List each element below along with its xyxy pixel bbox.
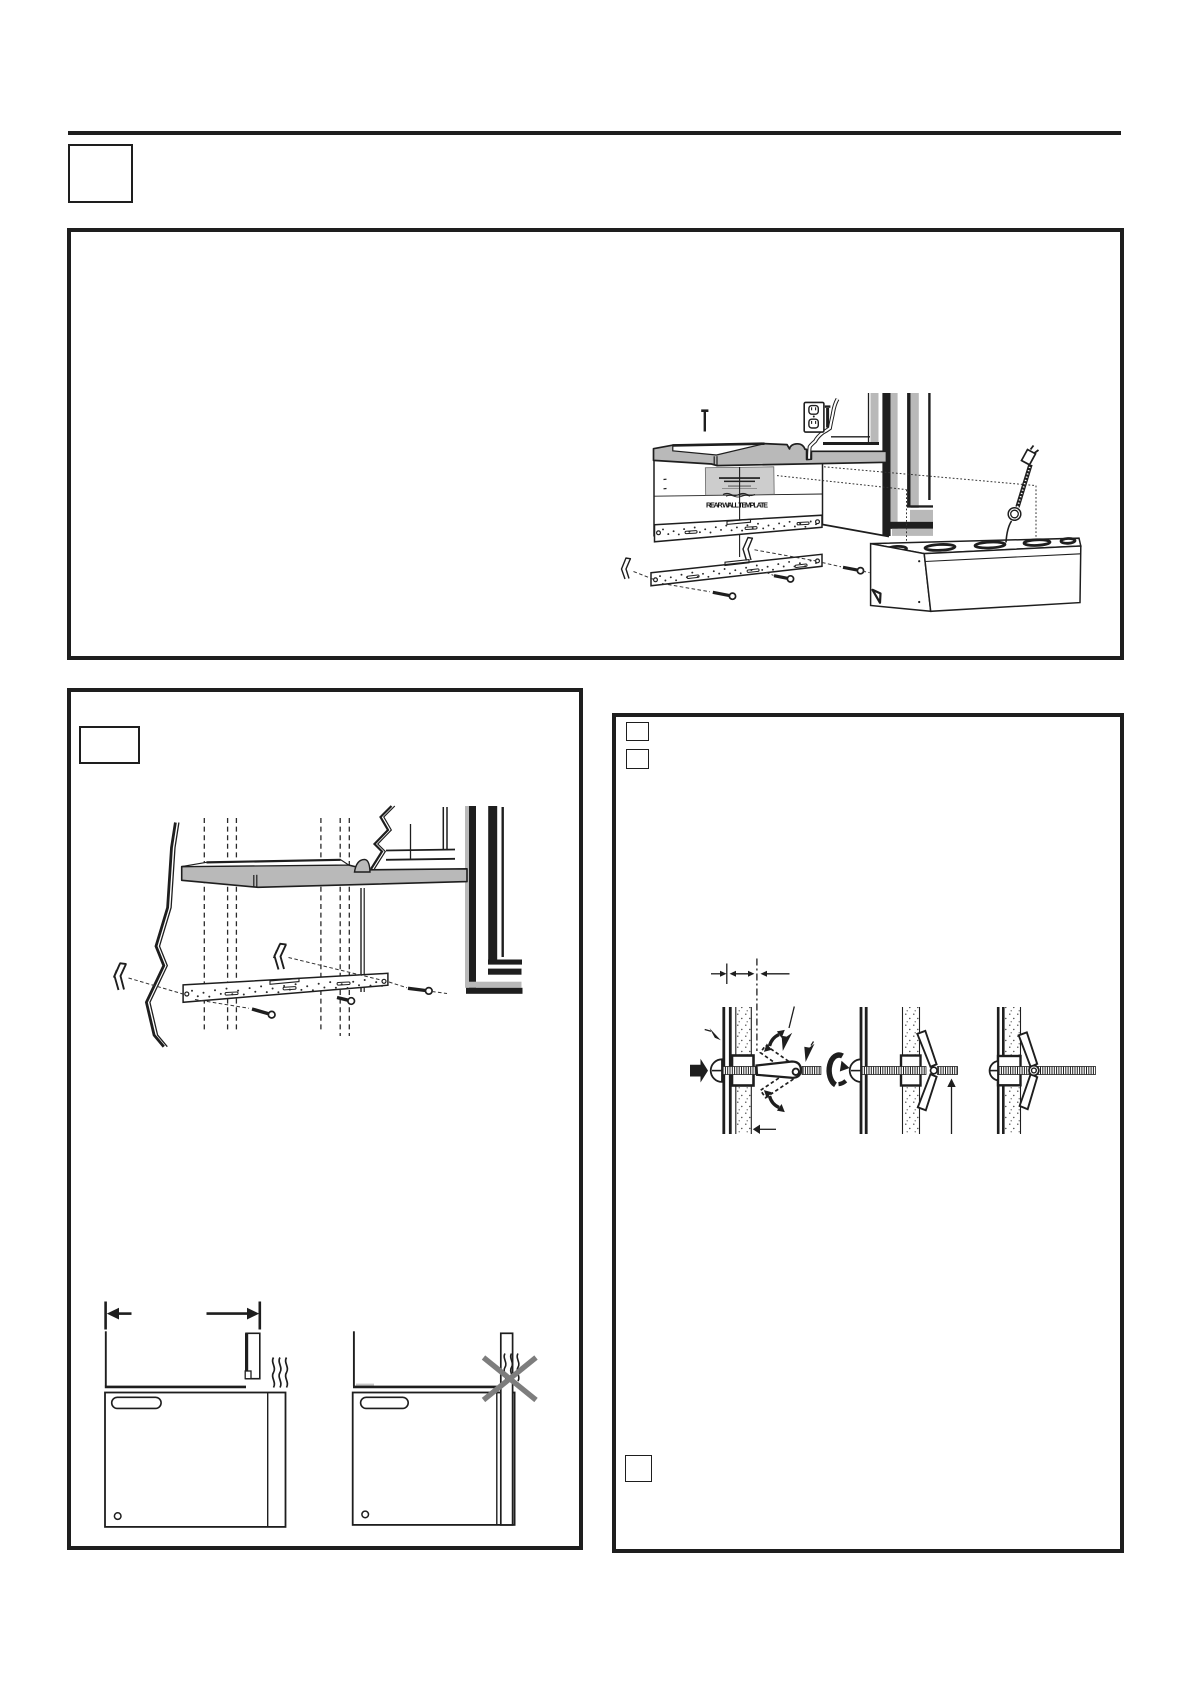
- svg-text:REAR WALL TEMPLATE: REAR WALL TEMPLATE: [706, 501, 768, 510]
